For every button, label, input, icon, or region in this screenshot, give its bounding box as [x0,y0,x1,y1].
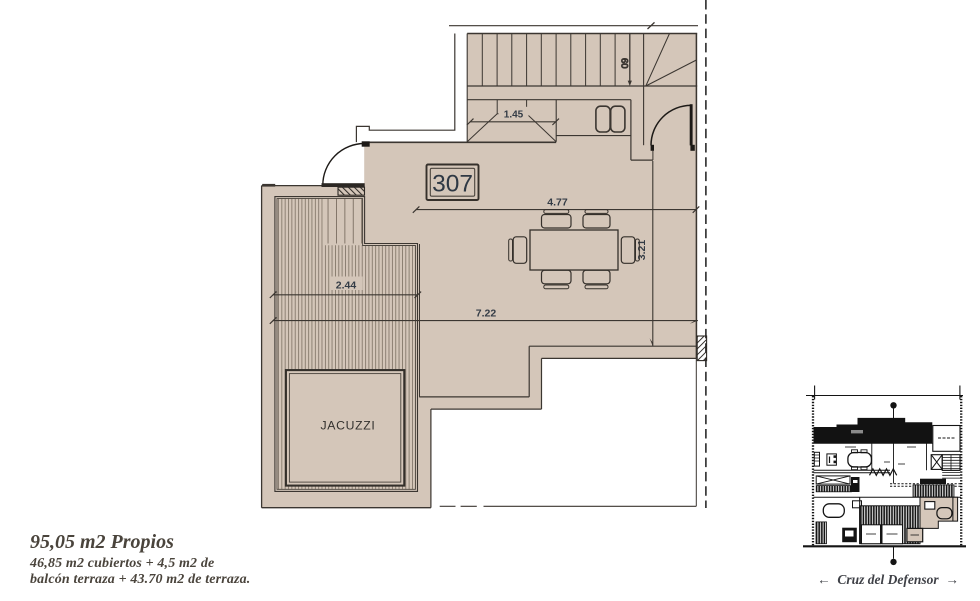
svg-text:7.22: 7.22 [476,308,497,320]
svg-text:4.77: 4.77 [547,197,568,209]
svg-text:3.21: 3.21 [636,240,648,261]
svg-text:1.45: 1.45 [504,110,524,121]
svg-text:2.44: 2.44 [336,279,357,291]
svg-text:307: 307 [432,171,473,198]
svg-text:60: 60 [619,58,630,69]
svg-text:← Cruz del Defensor →: ← Cruz del Defensor → [817,572,959,587]
svg-text:JACUZZI: JACUZZI [320,419,375,433]
